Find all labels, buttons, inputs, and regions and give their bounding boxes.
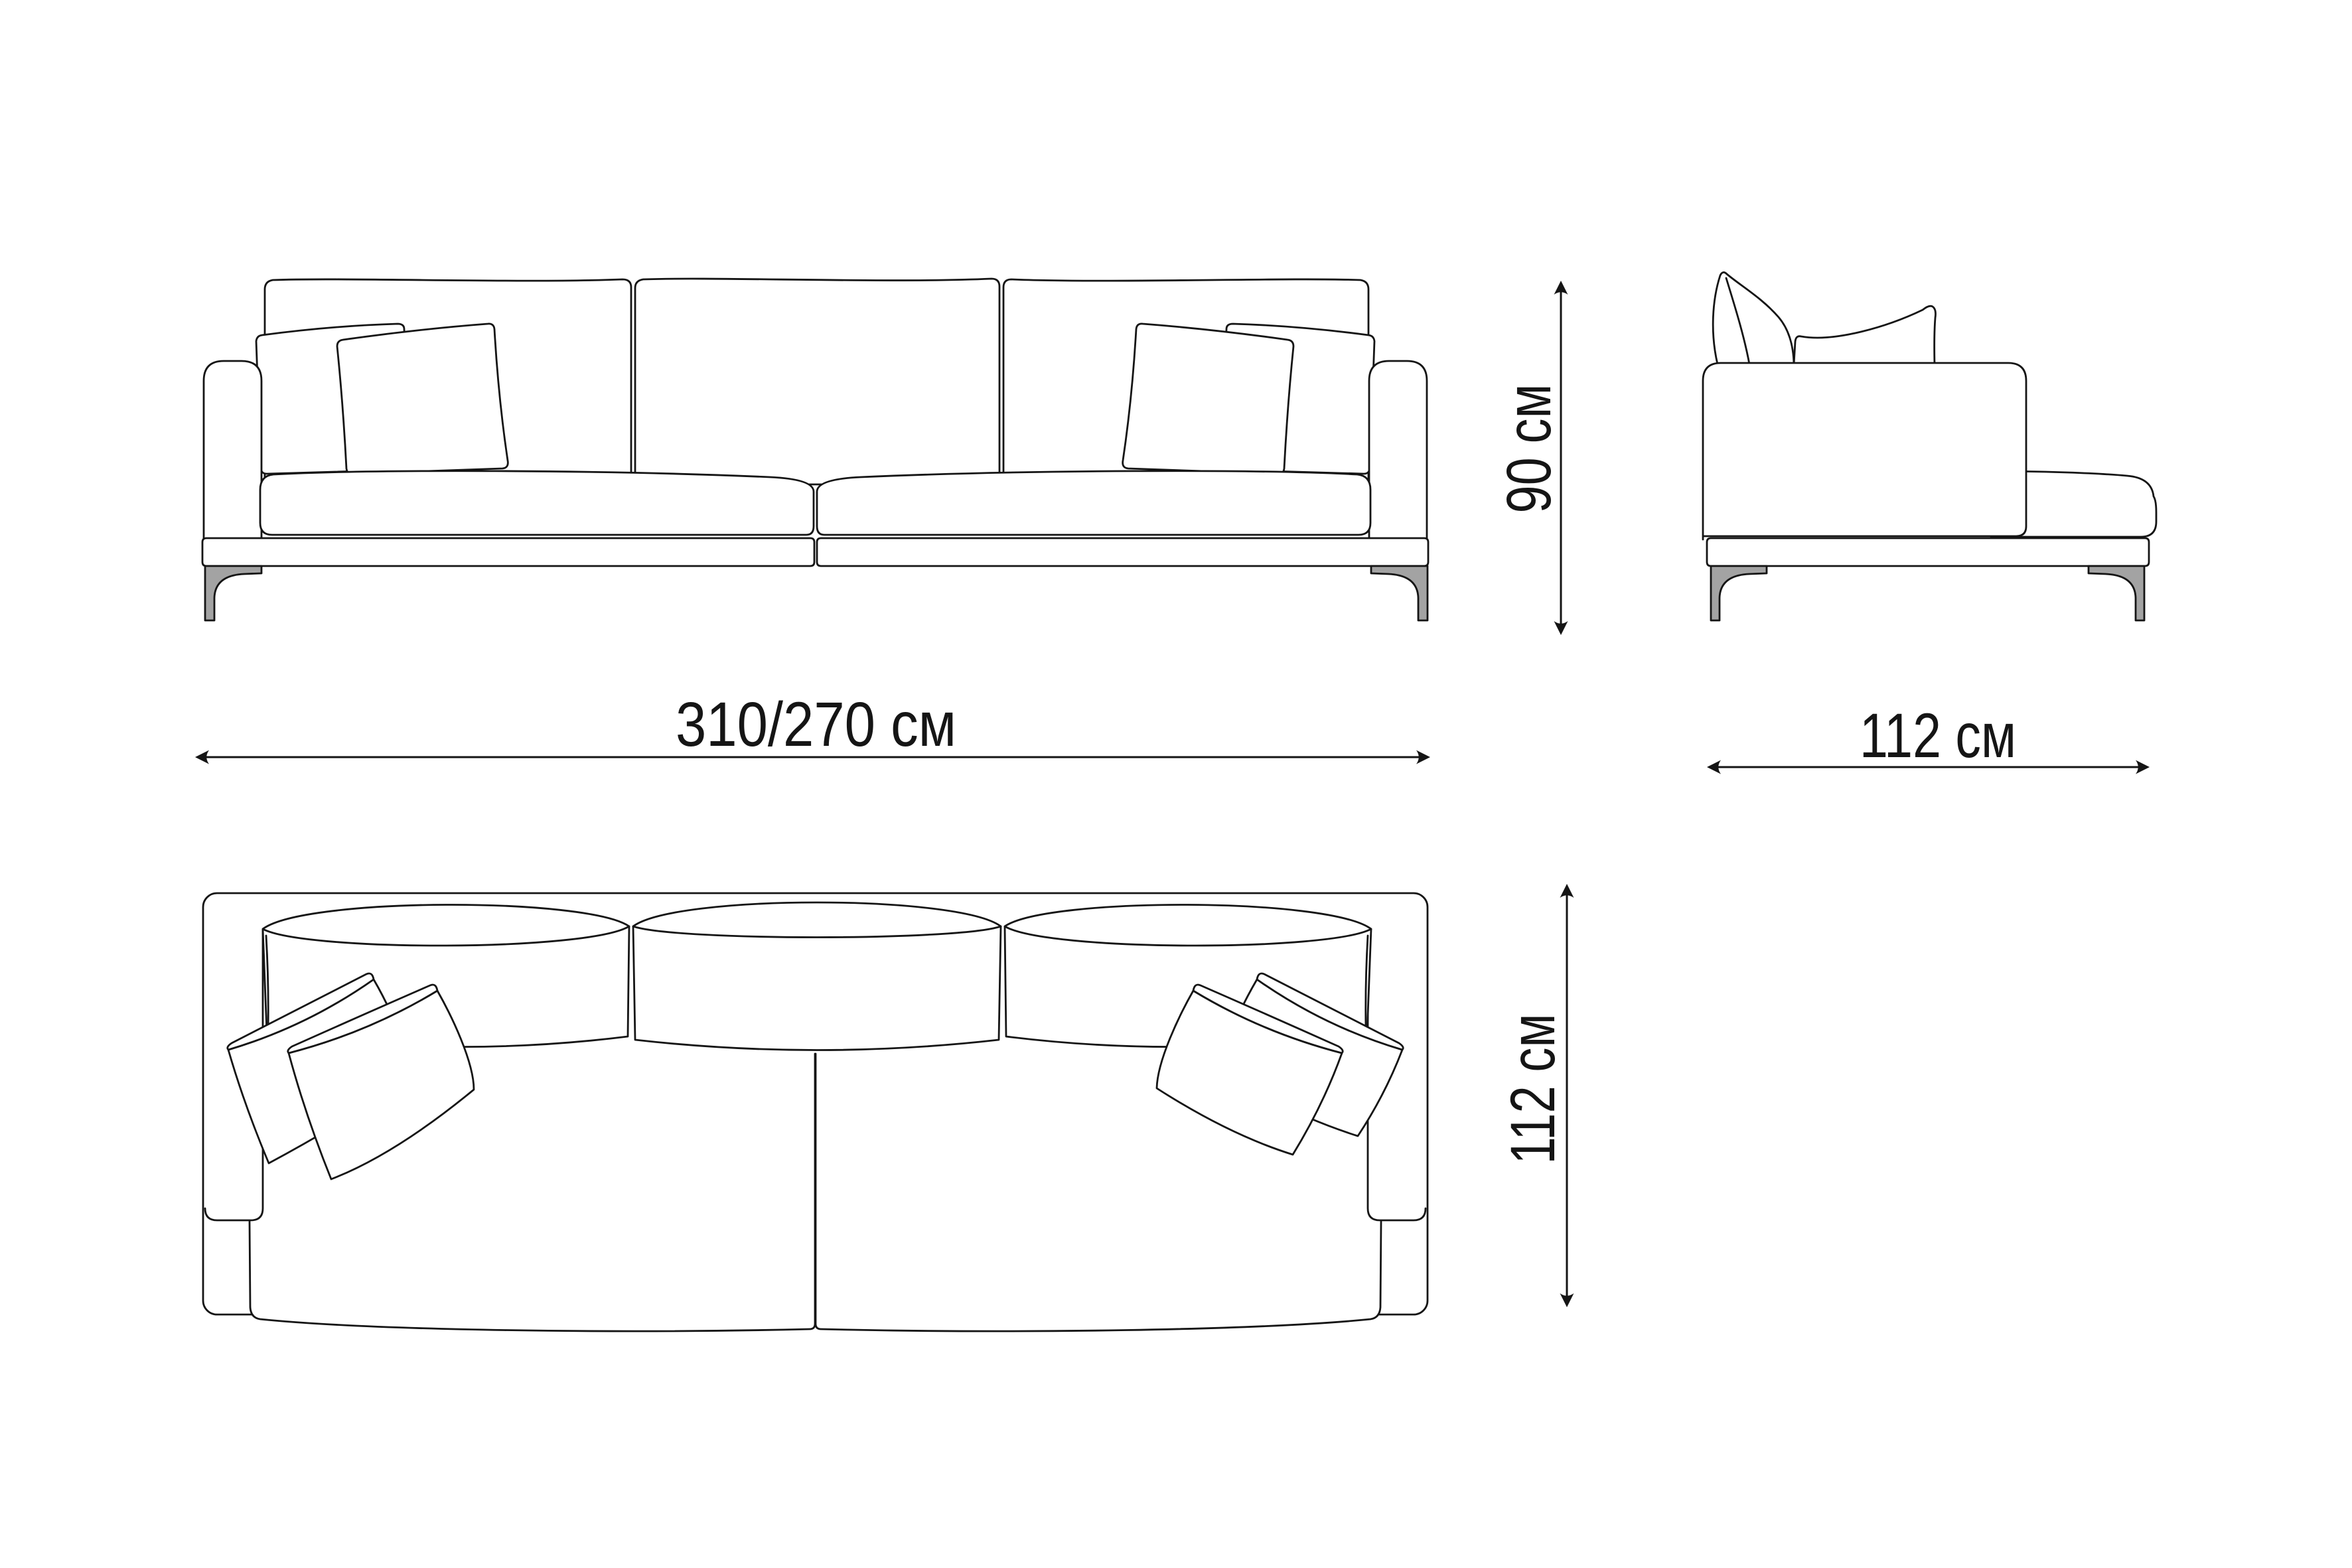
svg-text:112 см: 112 см xyxy=(1860,701,2016,771)
svg-text:90 см: 90 см xyxy=(1494,384,1564,514)
svg-text:310/270 см: 310/270 см xyxy=(676,689,956,760)
svg-text:112 см: 112 см xyxy=(1498,1014,1568,1165)
